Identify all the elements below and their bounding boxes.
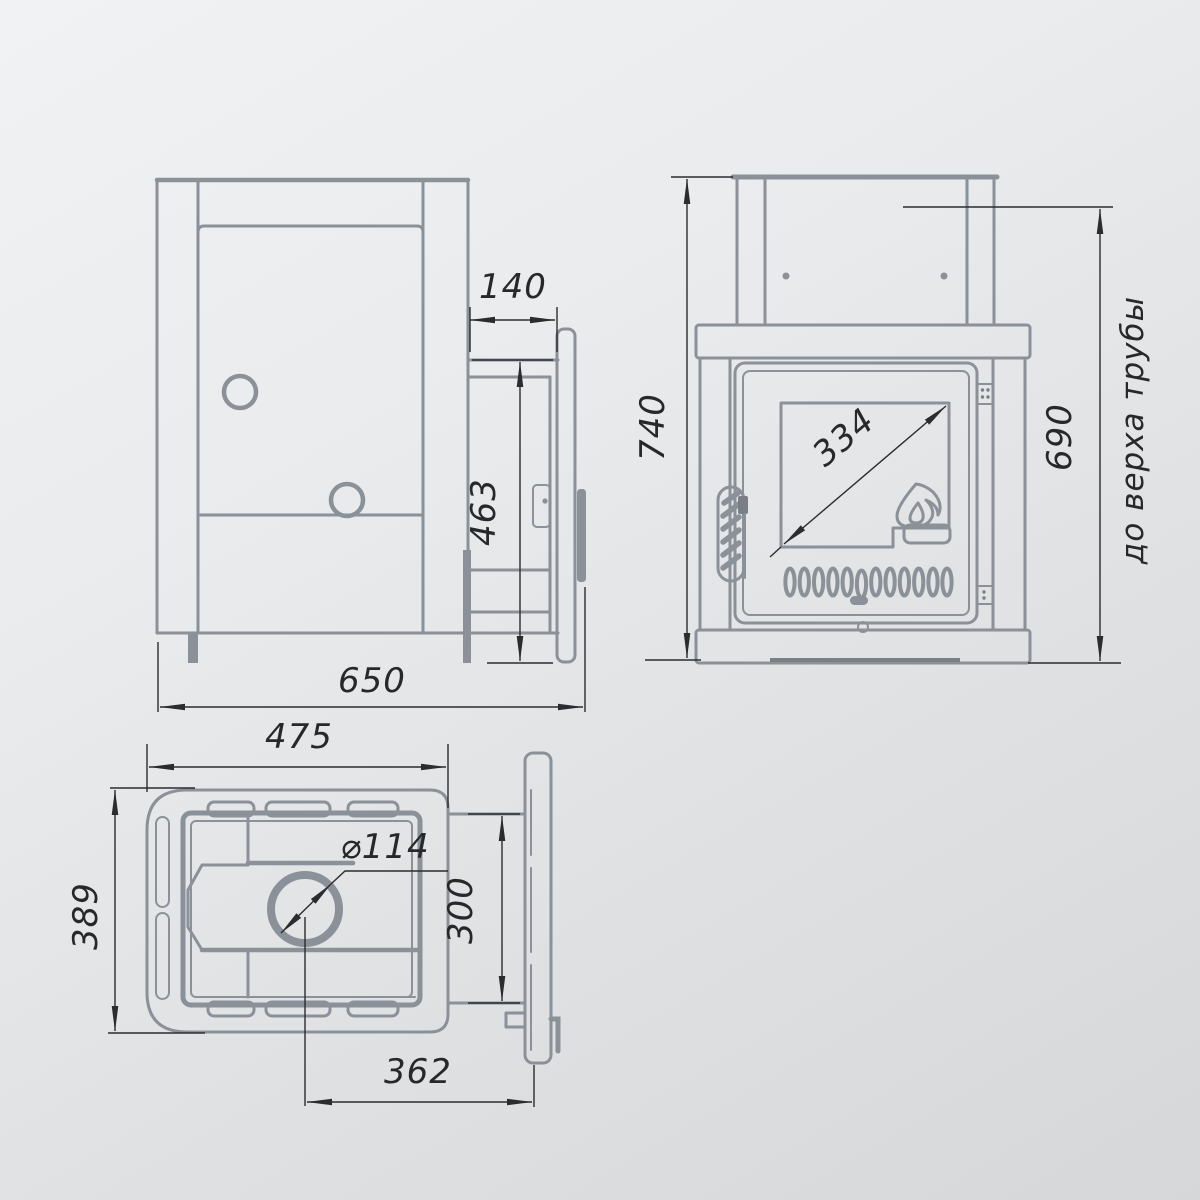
side-latch bbox=[533, 485, 550, 527]
flame-icon bbox=[897, 484, 940, 527]
top-firebox-chevron bbox=[188, 865, 248, 950]
dim-door-unit-height: 463 bbox=[464, 360, 553, 663]
dim-label-475: 475 bbox=[265, 717, 333, 757]
dim-label-463: 463 bbox=[464, 478, 504, 546]
top-view: 475 389 ⌀114 300 362 bbox=[66, 717, 558, 1107]
dim-pipe-top-height: 690 до верха трубы bbox=[903, 207, 1151, 663]
side-view-structure bbox=[157, 180, 586, 663]
top-slot-lower bbox=[156, 913, 169, 999]
dim-body-width: 475 bbox=[147, 717, 448, 808]
side-door-handle-bar bbox=[577, 489, 586, 582]
dim-label-300: 300 bbox=[441, 876, 481, 944]
side-rear-leg bbox=[188, 634, 198, 663]
dim-total-height: 740 bbox=[633, 177, 733, 660]
side-inner-panel-top bbox=[198, 226, 423, 232]
front-top-plate bbox=[696, 325, 1030, 358]
pipe-note-label: до верха трубы bbox=[1115, 296, 1151, 565]
dim-label-650: 650 bbox=[338, 661, 406, 701]
front-view: 740 334 690 до верха трубы bbox=[633, 177, 1151, 663]
side-port-lower-circle bbox=[331, 484, 363, 516]
dim-pipe-diameter: ⌀114 bbox=[281, 827, 448, 933]
side-view: 140 463 650 bbox=[157, 180, 586, 712]
dim-label-389: 389 bbox=[66, 882, 106, 950]
ash-lever bbox=[850, 596, 868, 605]
dim-tunnel-depth: 140 bbox=[470, 267, 557, 352]
door-vents bbox=[785, 569, 951, 598]
top-view-structure bbox=[147, 753, 558, 1063]
chimney-rivet-left bbox=[783, 273, 790, 280]
dim-glass-diagonal: 334 bbox=[770, 400, 946, 557]
door-handle bbox=[718, 487, 748, 581]
top-handle-mount bbox=[506, 1013, 525, 1027]
side-body-outline bbox=[157, 180, 468, 633]
dim-label-690: 690 bbox=[1040, 403, 1080, 471]
dim-label-140: 140 bbox=[479, 267, 547, 307]
door-latch bbox=[738, 496, 748, 514]
dim-label-362: 362 bbox=[384, 1052, 452, 1092]
top-door-plate bbox=[525, 753, 551, 1063]
chimney-rivet-right bbox=[941, 273, 948, 280]
door-hinge-bottom bbox=[977, 586, 993, 604]
dim-tunnel-width: 300 bbox=[441, 814, 520, 1003]
dim-label-334: 334 bbox=[805, 400, 883, 474]
stove-technical-drawing: 140 463 650 bbox=[0, 0, 1200, 1200]
dim-total-depth: 650 bbox=[158, 587, 585, 712]
dim-label-740: 740 bbox=[633, 393, 673, 461]
top-slot-upper bbox=[156, 817, 169, 907]
side-front-leg bbox=[463, 550, 471, 663]
side-latch-pin bbox=[542, 498, 547, 503]
door-hinge-top bbox=[977, 384, 993, 404]
dim-label-114: ⌀114 bbox=[340, 827, 429, 867]
side-door-plate bbox=[557, 329, 575, 662]
side-port-upper-circle bbox=[224, 376, 256, 408]
